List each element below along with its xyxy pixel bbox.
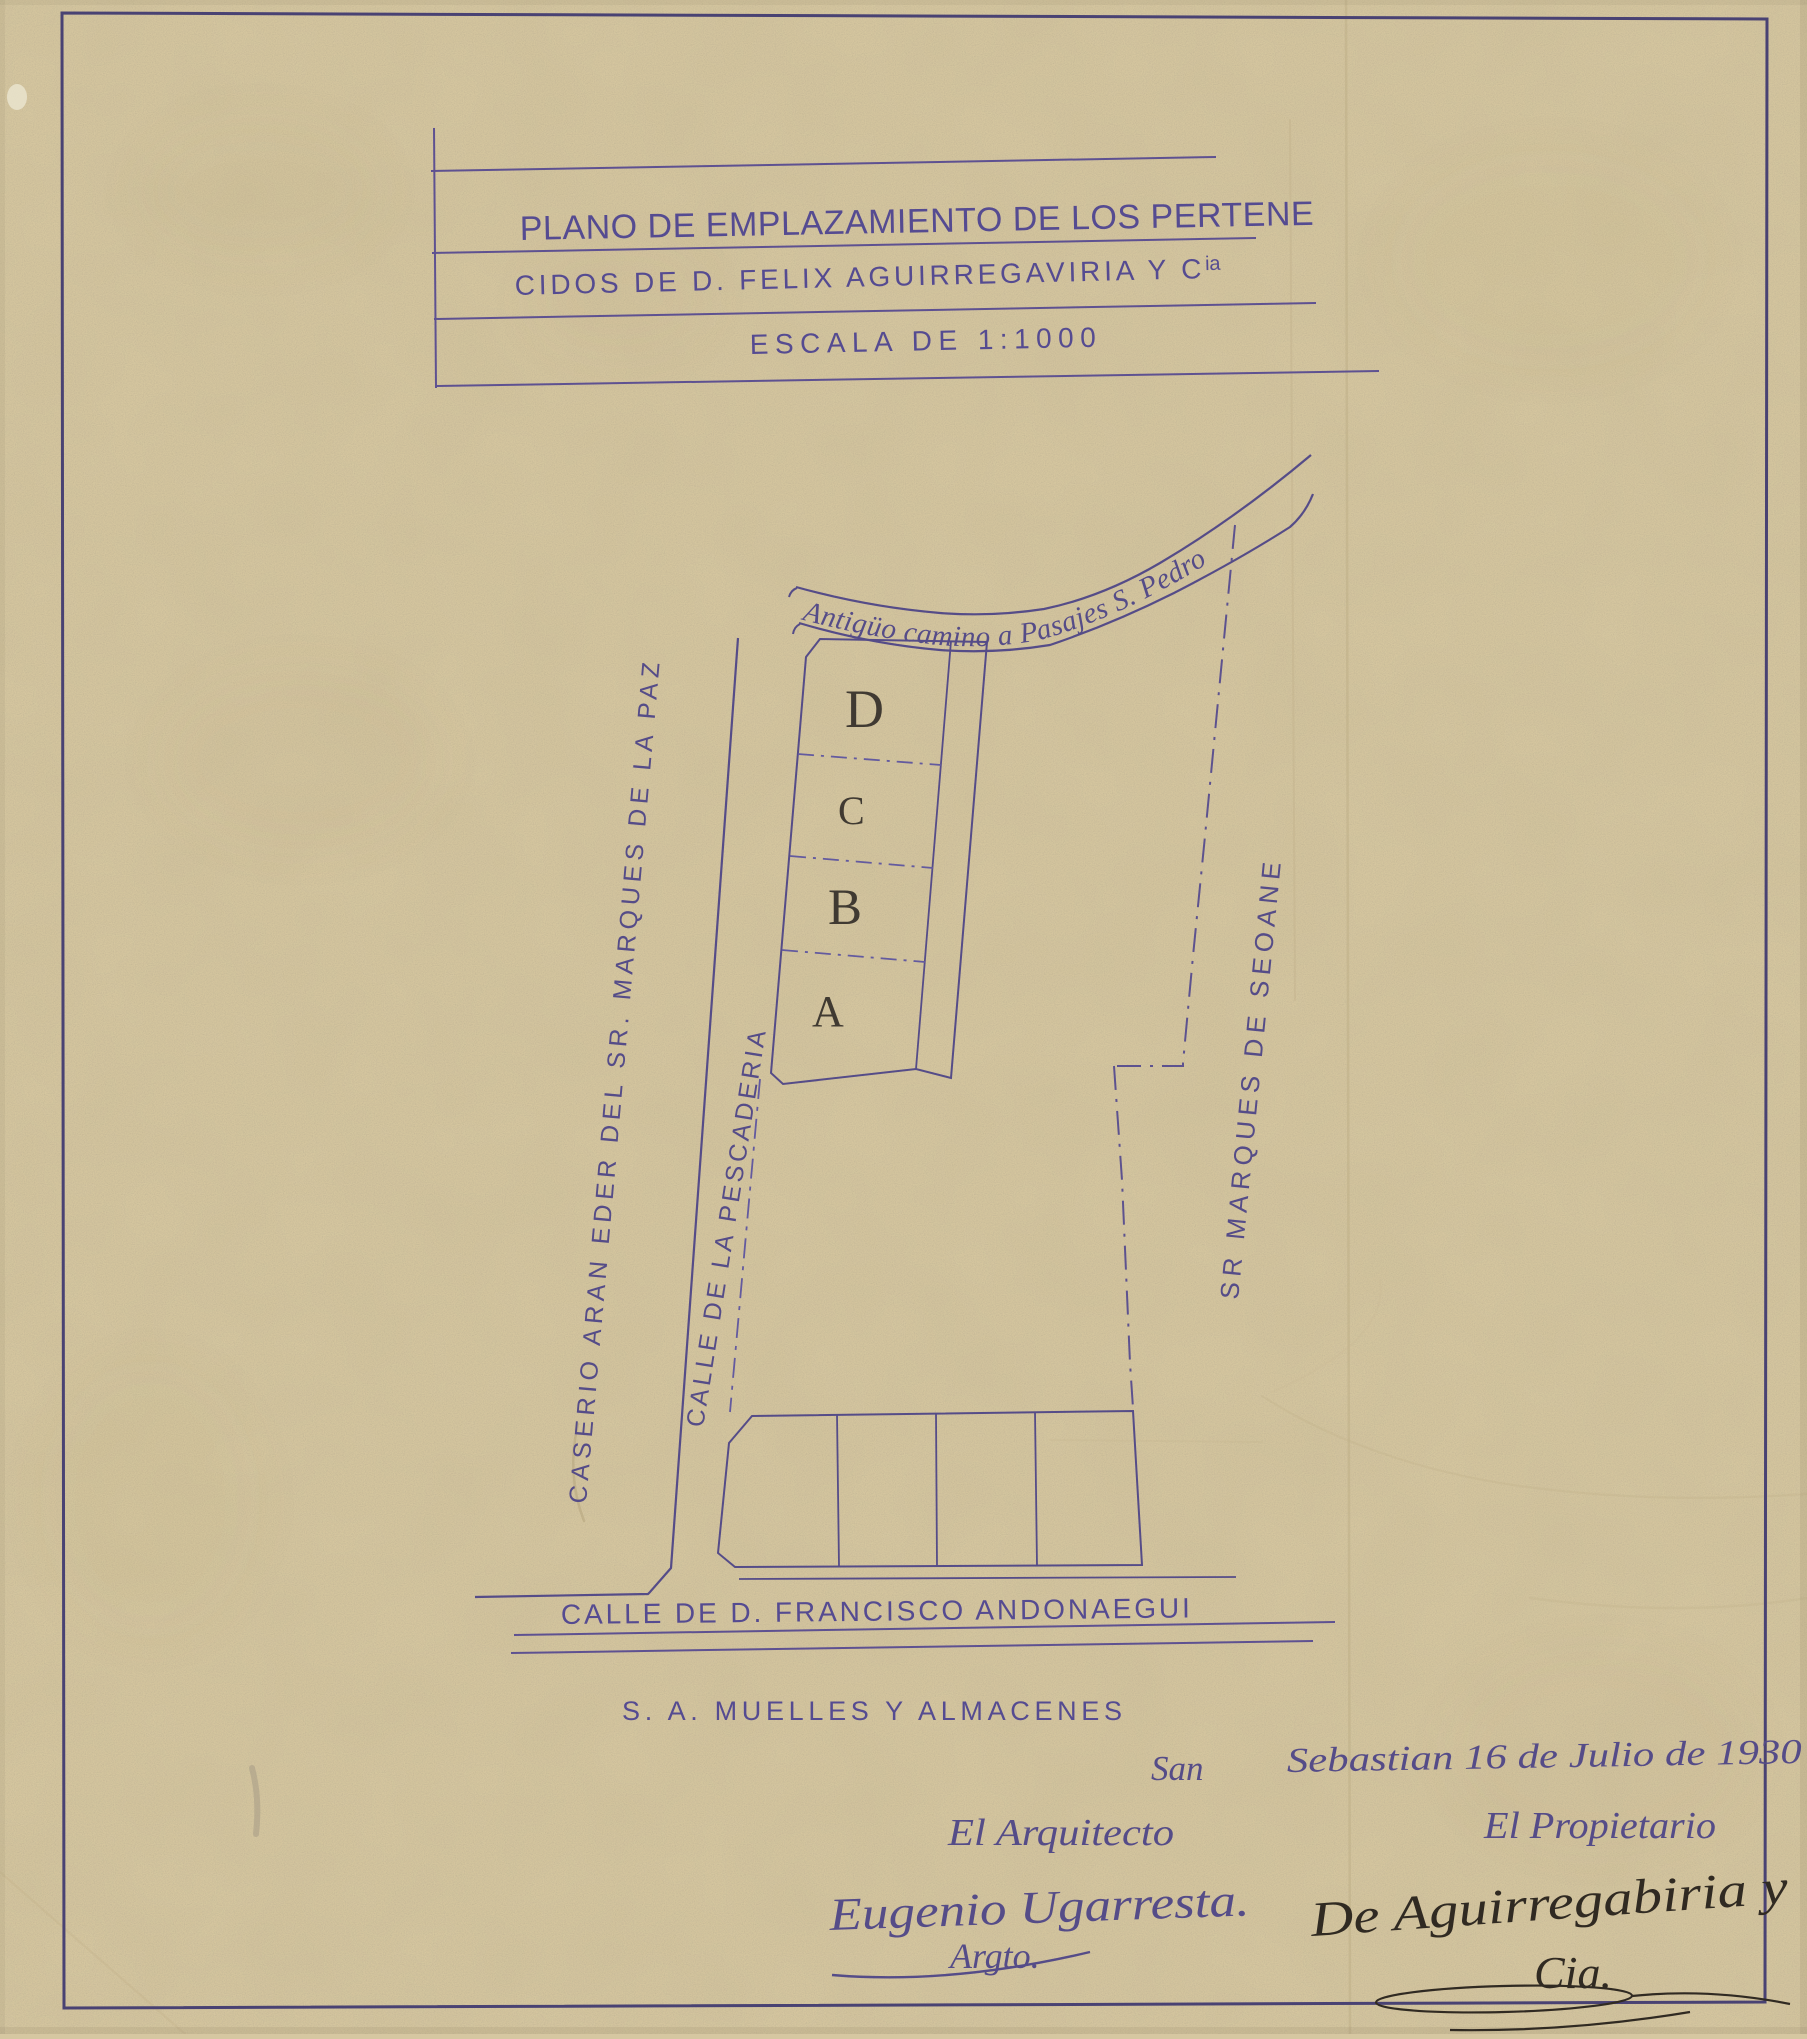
svg-text:Cia.: Cia. (1534, 1947, 1612, 1998)
